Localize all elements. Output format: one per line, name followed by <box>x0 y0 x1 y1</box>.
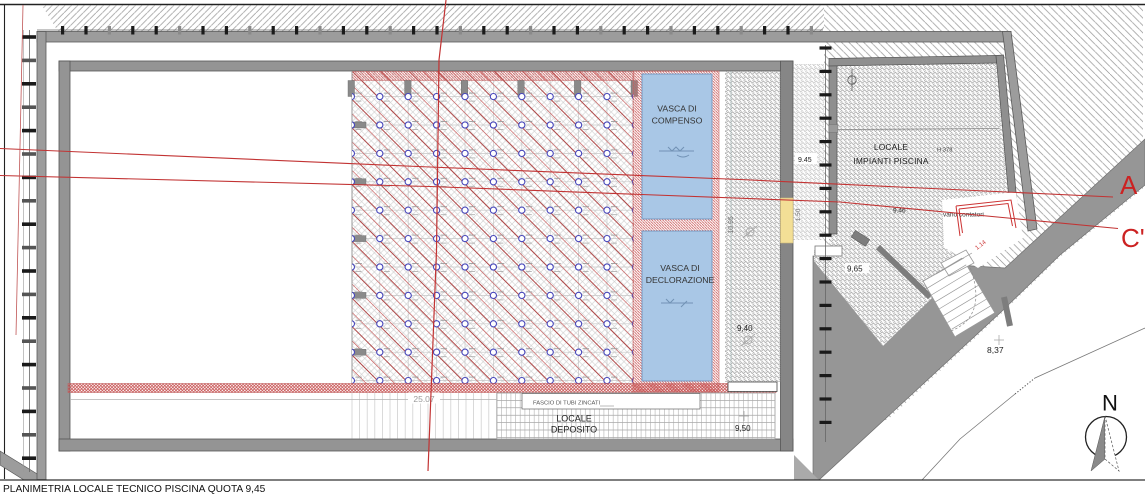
svg-text:H 378: H 378 <box>937 148 952 154</box>
svg-text:VASCA DI: VASCA DI <box>660 263 699 273</box>
svg-text:A: A <box>1120 170 1138 200</box>
svg-text:DEPOSITO: DEPOSITO <box>551 425 597 435</box>
svg-text:IMPIANTI PISCINA: IMPIANTI PISCINA <box>853 156 929 166</box>
svg-text:25.07: 25.07 <box>413 394 435 404</box>
svg-text:9,65: 9,65 <box>847 265 863 274</box>
svg-text:8,37: 8,37 <box>987 345 1004 355</box>
svg-text:1.50: 1.50 <box>795 208 802 221</box>
svg-text:C': C' <box>1121 223 1145 253</box>
svg-text:9,50: 9,50 <box>735 424 751 433</box>
svg-text:LOCALE: LOCALE <box>874 142 908 152</box>
svg-text:10.95: 10.95 <box>728 216 735 234</box>
svg-text:VASCA DI: VASCA DI <box>657 104 696 114</box>
svg-text:FASCIO DI TUBI ZINCATI: FASCIO DI TUBI ZINCATI <box>533 401 600 407</box>
svg-text:9,40: 9,40 <box>737 324 753 333</box>
svg-text:LOCALE: LOCALE <box>556 414 592 424</box>
svg-text:COMPENSO: COMPENSO <box>652 116 703 126</box>
svg-text:PLANIMETRIA LOCALE TECNICO PIS: PLANIMETRIA LOCALE TECNICO PISCINA QUOTA… <box>3 484 266 494</box>
svg-text:9.45: 9.45 <box>798 157 812 164</box>
svg-text:N: N <box>1102 391 1118 416</box>
svg-text:DECLORAZIONE: DECLORAZIONE <box>646 275 715 285</box>
